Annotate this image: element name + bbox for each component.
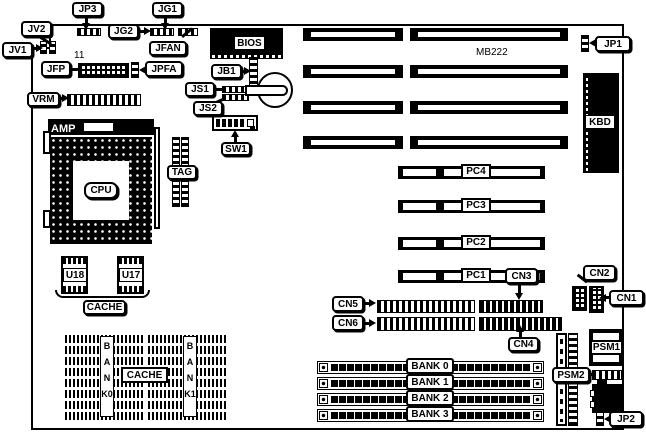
vrm-arrow xyxy=(62,94,69,102)
bank1-label: BANK 1 xyxy=(406,374,454,390)
callout-jp3: JP3 xyxy=(72,2,103,17)
bank3-label: BANK 3 xyxy=(406,406,454,422)
jv1-arrow xyxy=(36,44,43,52)
callout-cn6: CN6 xyxy=(332,315,364,331)
callout-jfan: JFAN xyxy=(149,41,187,56)
capacitor-lower xyxy=(43,210,51,228)
pc3-label: PC3 xyxy=(461,198,491,213)
cn5-arrow xyxy=(369,299,376,307)
callout-cn4: CN4 xyxy=(508,337,539,352)
pc2-label: PC2 xyxy=(461,235,491,250)
callout-cache-array: CACHE xyxy=(121,367,168,383)
power-connector xyxy=(592,384,623,413)
bank2-label: BANK 2 xyxy=(406,390,454,406)
cn3-arrow xyxy=(515,293,523,300)
jfp-pin1-note: 11 xyxy=(74,50,84,61)
bios-pins xyxy=(212,55,281,58)
pc1-label: PC1 xyxy=(461,268,491,283)
callout-psm1: PSM1 xyxy=(590,340,623,355)
callout-js2: JS2 xyxy=(193,101,223,116)
cn6-header xyxy=(377,317,475,331)
u17-label: U17 xyxy=(119,268,143,282)
jb1-arrow xyxy=(244,67,251,75)
simm-cap xyxy=(319,363,328,372)
battery-clip xyxy=(245,85,288,96)
bios-label: BIOS xyxy=(234,36,265,50)
callout-vrm: VRM xyxy=(27,92,60,107)
jfp-header xyxy=(78,63,129,78)
jg2-arrow xyxy=(144,27,151,35)
cn2-connector xyxy=(572,286,587,311)
jg1-arrow xyxy=(161,23,169,30)
pc4-label: PC4 xyxy=(461,164,491,179)
callout-jp1: JP1 xyxy=(595,36,631,52)
simm-cap xyxy=(533,363,542,372)
power-tab xyxy=(597,380,607,385)
callout-cache-sram: CACHE xyxy=(83,300,126,315)
callout-cn1: CN1 xyxy=(609,290,644,306)
simm-cap xyxy=(319,395,328,404)
power-notch-1 xyxy=(590,390,595,397)
cn5-header xyxy=(377,300,475,313)
u17-pins-bottom xyxy=(119,286,142,292)
simm-cap xyxy=(319,411,328,420)
capacitor-upper xyxy=(43,131,51,154)
simm-cap xyxy=(533,395,542,404)
cache-bank1-column-label: BANK1 xyxy=(183,336,197,417)
callout-jfp: JFP xyxy=(41,61,71,77)
u18-label: U18 xyxy=(63,268,87,282)
callout-jpfa: JPFA xyxy=(145,61,183,77)
sw1-corner-pad xyxy=(250,126,255,131)
callout-cn5: CN5 xyxy=(332,296,364,312)
jpfa-connector xyxy=(131,62,139,78)
callout-jv2: JV2 xyxy=(21,21,52,37)
isa-slot-1-left xyxy=(303,28,403,41)
simm-cap xyxy=(533,411,542,420)
jp1-jumper xyxy=(581,35,589,52)
isa-slot-4-right xyxy=(410,136,568,149)
u18-pins-top xyxy=(63,258,86,264)
psm1-slot-bottom xyxy=(593,355,619,362)
u17-pins-top xyxy=(119,258,142,264)
callout-jv1: JV1 xyxy=(2,42,33,58)
amp-window xyxy=(84,123,113,131)
simm-cap xyxy=(319,379,328,388)
isa-slot-4-left xyxy=(303,136,403,149)
vrm-header xyxy=(67,94,141,106)
kbd-label: KBD xyxy=(585,115,615,129)
amp-label: AMP xyxy=(48,123,75,135)
isa-slot-3-left xyxy=(303,101,403,114)
simm-cap xyxy=(533,379,542,388)
callout-jg1: JG1 xyxy=(152,2,183,17)
board-name: MB222 xyxy=(476,47,508,58)
callout-tag: TAG xyxy=(167,165,197,180)
callout-sw1: SW1 xyxy=(221,142,251,156)
cn3-header xyxy=(479,300,543,313)
callout-jp2: JP2 xyxy=(609,411,643,427)
jp2-jumper xyxy=(596,412,604,426)
power-notch-2 xyxy=(590,401,595,408)
amp-regulator: AMP xyxy=(48,119,154,135)
cache-bank0-column-label: BANK0 xyxy=(100,336,114,417)
callout-cn2: CN2 xyxy=(583,265,616,281)
sw1-arrow xyxy=(231,130,239,137)
cn6-arrow xyxy=(369,319,376,327)
isa-slot-3-right xyxy=(410,101,568,114)
bank0-label: BANK 0 xyxy=(406,358,454,374)
socket-lever xyxy=(154,127,160,229)
isa-slot-2-left xyxy=(303,65,403,78)
callout-js1: JS1 xyxy=(185,82,215,97)
callout-psm2: PSM2 xyxy=(552,367,590,383)
isa-slot-2-right xyxy=(410,65,568,78)
callout-cn3: CN3 xyxy=(505,268,538,284)
jp3-arrow xyxy=(82,23,90,30)
u18-pins-bottom xyxy=(63,286,86,292)
sw1-switches xyxy=(216,119,246,127)
motherboard-diagram: JV2 JV1 JP3 JG2 JG1 JFAN JFP 11 JPFA VRM… xyxy=(0,0,646,438)
psm2-header xyxy=(592,370,622,380)
isa-slot-1-right xyxy=(410,28,568,41)
psm1-slot-top xyxy=(593,333,619,340)
cpu-label: CPU xyxy=(84,182,118,199)
callout-jb1: JB1 xyxy=(211,64,242,79)
callout-jg2: JG2 xyxy=(108,24,139,39)
